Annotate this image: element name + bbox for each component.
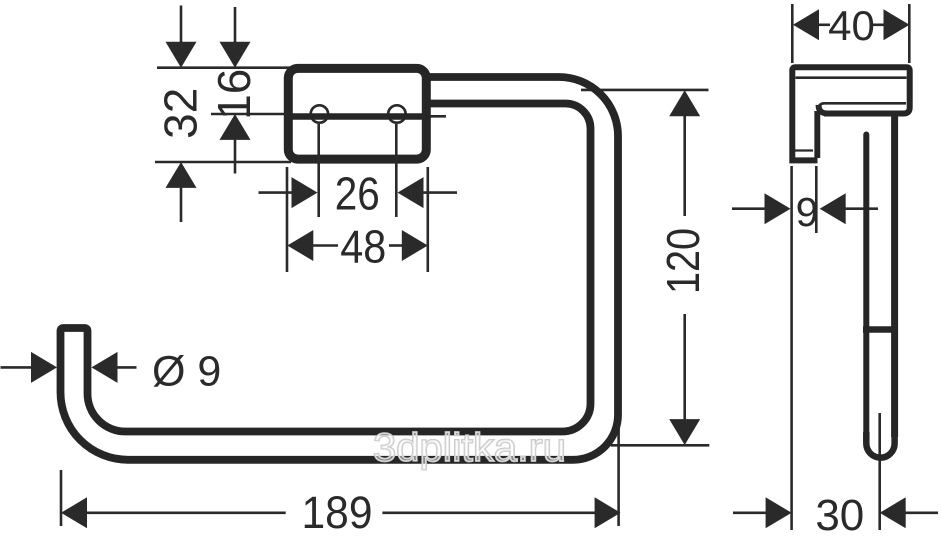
- svg-text:26: 26: [335, 167, 380, 219]
- svg-text:120: 120: [657, 228, 709, 294]
- svg-text:9: 9: [796, 189, 819, 235]
- svg-text:32: 32: [155, 88, 207, 139]
- svg-text:48: 48: [340, 220, 386, 272]
- svg-text:16: 16: [208, 69, 260, 120]
- svg-text:189: 189: [302, 487, 373, 538]
- svg-text:3dplitka.ru: 3dplitka.ru: [373, 426, 566, 470]
- svg-text:30: 30: [815, 491, 864, 539]
- svg-text:Ø 9: Ø 9: [152, 348, 221, 396]
- svg-text:40: 40: [828, 2, 875, 49]
